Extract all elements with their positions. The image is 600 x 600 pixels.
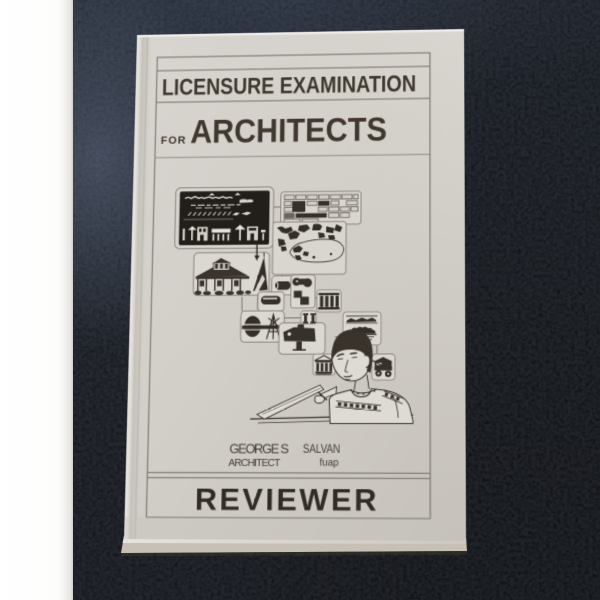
svg-text:FOR: FOR [161,134,187,147]
svg-text:ARCHITECT: ARCHITECT [228,457,280,469]
svg-text:GEORGE S: GEORGE S [229,441,289,456]
svg-text:LICENSURE EXAMINATION: LICENSURE EXAMINATION [162,70,416,100]
svg-text:fuap: fuap [320,457,339,469]
svg-text:ARCHITECTS: ARCHITECTS [190,111,387,150]
svg-text:SALVAN: SALVAN [303,443,341,456]
svg-text:REVIEWER: REVIEWER [195,483,377,519]
